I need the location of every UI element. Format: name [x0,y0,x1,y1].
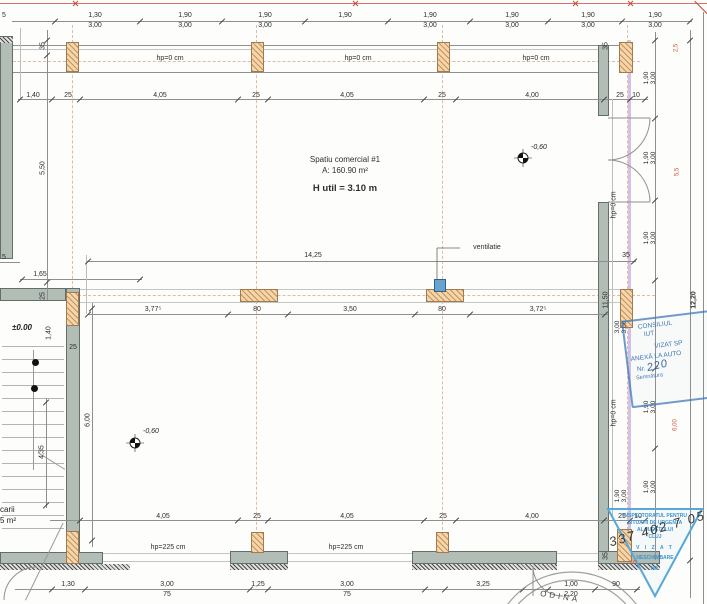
room-area: A: 160.90 m² [322,166,368,175]
red-dim-note: 5,5 [675,168,682,176]
hp-label: hp=0 cm [611,191,618,218]
dim-label: 4,05 [156,513,170,520]
dim-pair: 1,903,00 [423,12,437,29]
level-label: -0,60 [143,428,159,435]
dim-pair: 1,903,00 [581,12,595,29]
dim-label: 5 [2,12,6,19]
level-marker [514,149,532,167]
door-arc [4,567,37,600]
dim-pair: 1,90 [338,12,352,29]
dim-pair: 1,25 [251,581,265,598]
dim-label: 35 [603,552,610,560]
dim-label: 35 [622,252,630,259]
dim-label: 6,00 [85,413,92,427]
dim-pair: 1,903,00 [648,12,662,29]
hp-label: hp=0 cm [611,399,618,426]
dim-pair: 3,0075 [340,581,354,598]
hp-label: hp=225 cm [329,544,364,551]
triangle-stamp-text: V I Z A T [636,545,674,551]
dim-label: 12,20 [691,291,698,309]
ventilation-duct [434,279,446,292]
triangle-stamp-text: NR. [651,566,660,572]
dim-label: 4,00 [525,92,539,99]
dim-pair: 1,903,00 [258,12,272,29]
leader-line [437,248,460,279]
dim-label: 1,40 [26,92,40,99]
dim-label: 25 [438,92,446,99]
dim-label: 4,00 [525,513,539,520]
dim-label: 5,50 [40,161,47,175]
dim-label: 25 [252,92,260,99]
red-dim-note: 2,5 [674,44,681,52]
hp-label: hp=0 cm [156,55,183,62]
dim-label: 80 [253,306,261,313]
dim-label: 25 [69,344,77,351]
red-handwritten-note: 5 [631,560,638,564]
dim-label: 35 [603,42,610,50]
hp-label: hp=0 cm [522,55,549,62]
dim-pair: 1,903,00 [505,12,519,29]
dim-label: 3,77⁵ [145,306,162,313]
dim-pair: 3,25 [476,581,490,598]
dim-label: 4,35 [39,445,46,459]
dim-pair: 1,903,00 [643,481,657,494]
room-name: Spatiu comercial #1 [310,155,380,164]
floor-plan-sheet: 5 1,303,00 1,903,00 1,903,00 1,90 1,903,… [0,0,707,604]
dim-label: 3,72⁵ [530,306,547,313]
triangle-stamp-text: NESCHIMBARE [636,555,673,561]
dim-label: 1,40 [46,326,53,340]
dim-label: 10 [632,92,640,99]
dim-pair: 1,903,00 [178,12,192,29]
dim-label: 11,50 [603,292,610,309]
dim-label: 35 [40,42,47,50]
hp-label: hp=0 cm [344,55,371,62]
level-zero-label: ±0.00 [12,323,32,332]
dim-label: 14,25 [304,252,322,259]
dim-label: 4,05 [340,513,354,520]
stair-room-label: carii 5 m² [0,504,16,526]
dim-label: 3,50 [343,306,357,313]
dim-label: 4,05 [340,92,354,99]
dim-label: 4,05 [153,92,167,99]
red-dim-note: 6,00 [673,419,680,431]
ventilation-label: ventilatie [473,244,501,251]
approval-stamp: CONSILIUL IUT VIZAT SP ANEXĂ LA AUTO Nr.… [621,308,707,409]
dim-label: 5 [2,254,6,261]
dim-label: 1,65 [33,271,47,278]
level-label: -0,60 [531,144,547,151]
room-height: H util = 3.10 m [313,183,377,194]
dim-pair: 1,30 [61,581,75,598]
stamp-handwritten-number: 220 [646,359,669,372]
dim-pair: 1,903,00 [614,490,628,503]
hp-label: hp=225 cm [151,544,186,551]
dim-label: 25 [64,92,72,99]
dim-pair: 1,303,00 [88,12,102,29]
dim-label: 25 [439,513,447,520]
dim-label: 25 [616,92,624,99]
dim-label: 25 [40,292,47,300]
dim-label: 80 [438,306,446,313]
dim-pair: 1,903,00 [643,72,657,85]
dim-pair: 1,903,00 [643,232,657,245]
dim-pair: 90 [612,581,620,598]
level-marker [126,434,144,452]
dim-pair: 3,0075 [160,581,174,598]
dim-pair: 1,903,00 [643,152,657,165]
dim-label: 25 [253,513,261,520]
